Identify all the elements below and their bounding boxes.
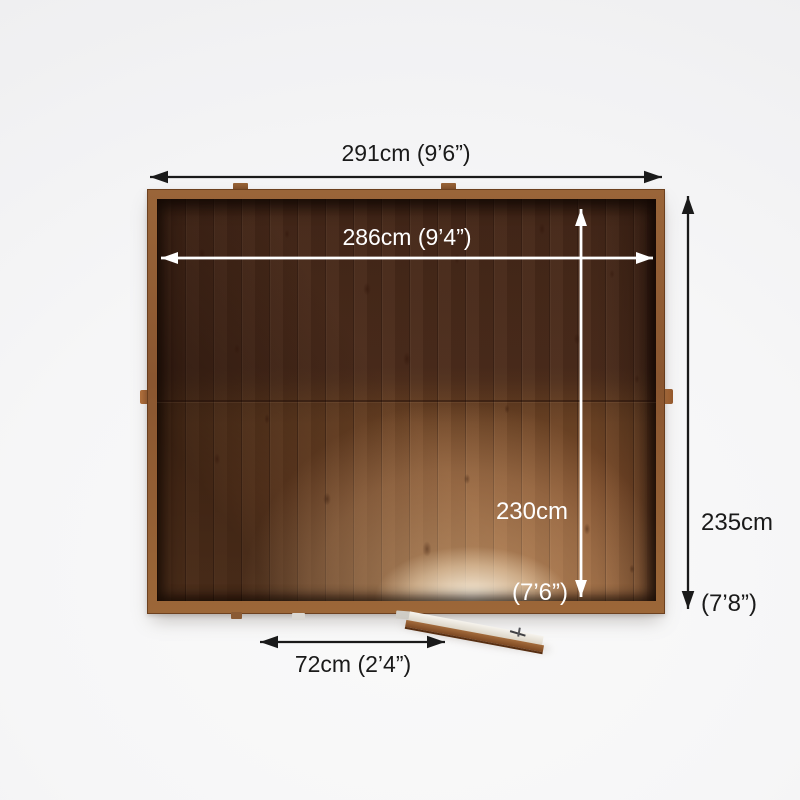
bottom-wall-tab bbox=[231, 612, 242, 619]
inner-depth-label: 230cm (7’6”) bbox=[428, 444, 568, 660]
bottom-wall-tab bbox=[292, 613, 305, 620]
outer-width-label: 291cm (9’6”) bbox=[147, 140, 665, 166]
shed-top-view bbox=[147, 189, 665, 614]
shed-interior-floor bbox=[157, 199, 656, 601]
door-width-label: 72cm (2’4”) bbox=[253, 651, 453, 677]
inner-depth-metric: 230cm bbox=[428, 498, 568, 525]
outer-depth-metric: 235cm bbox=[701, 509, 773, 536]
outer-depth-label: 235cm (7’8”) bbox=[701, 455, 773, 671]
inner-depth-imperial: (7’6”) bbox=[428, 579, 568, 606]
floor-panel-seam bbox=[157, 400, 656, 402]
outer-depth-imperial: (7’8”) bbox=[701, 590, 773, 617]
product-dimension-diagram: 291cm (9’6”) 286cm (9’4”) 230cm (7’6”) 2… bbox=[0, 0, 800, 800]
inner-width-label: 286cm (9’4”) bbox=[158, 224, 656, 250]
